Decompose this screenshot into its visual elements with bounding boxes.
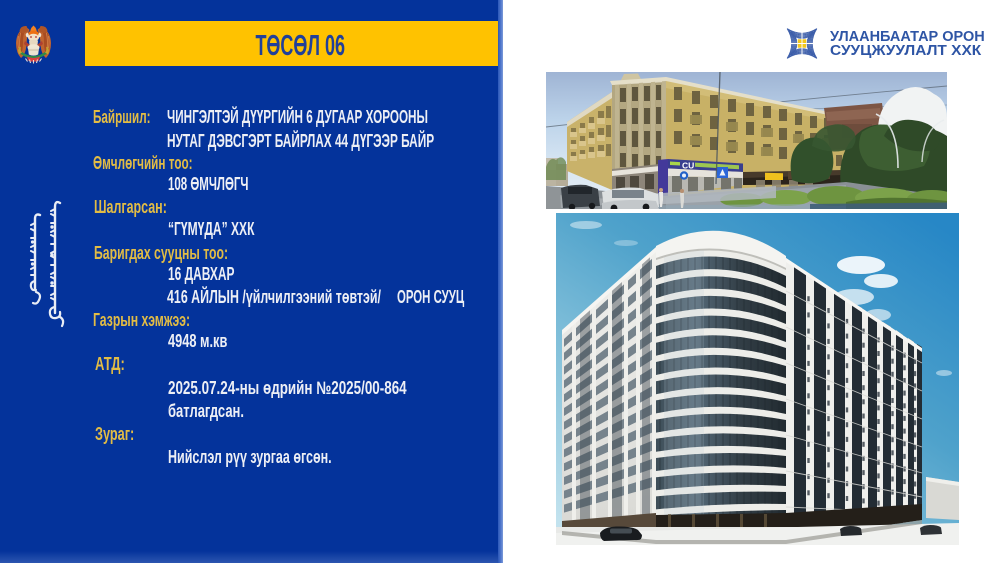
svg-text:CU: CU [682,161,694,171]
